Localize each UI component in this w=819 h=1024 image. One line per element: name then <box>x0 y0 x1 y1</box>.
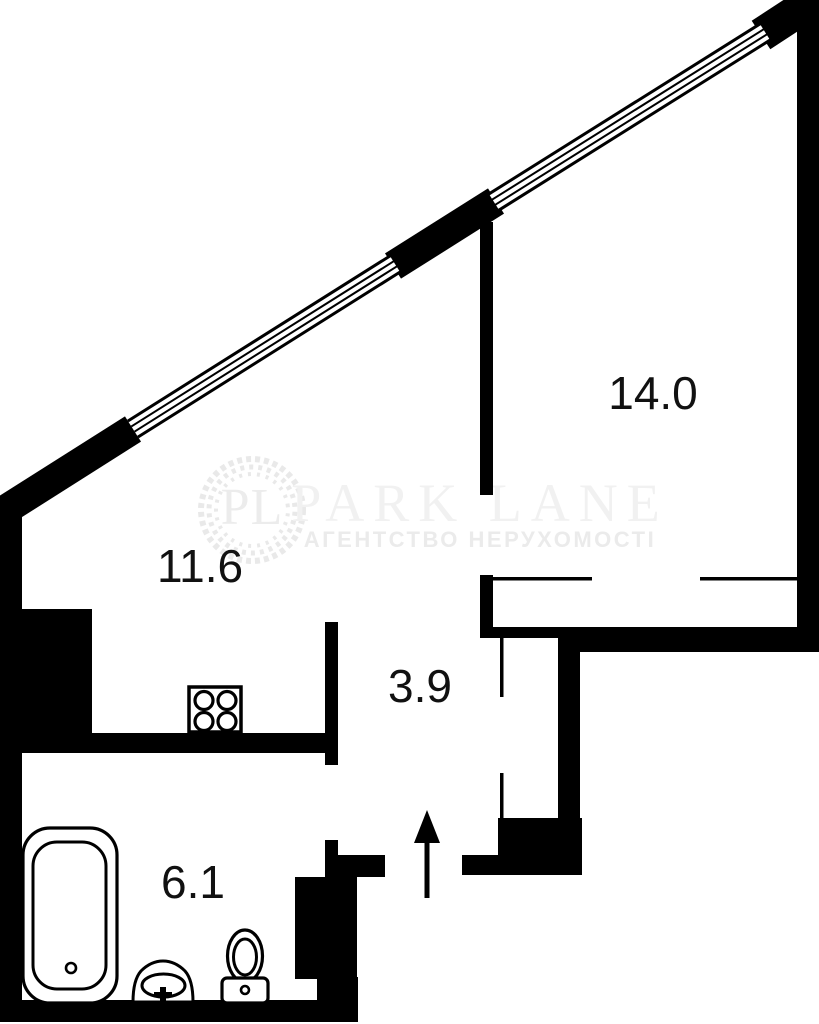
toilet-icon <box>222 930 268 1003</box>
window-segment-2 <box>491 27 768 207</box>
bathtub-icon <box>23 828 117 1003</box>
room-label-living-kitchen: 11.6 <box>157 539 243 593</box>
room-label-bathroom: 6.1 <box>161 855 225 909</box>
entrance-arrow-icon <box>414 810 440 898</box>
sink-icon <box>133 961 193 1002</box>
window-wall <box>2 0 816 512</box>
floor-plan-page: PL PARK LANE АГЕНТСТВО НЕРУХОМОСТІ <box>0 0 819 1024</box>
walls <box>0 0 819 1022</box>
room-label-hallway: 3.9 <box>388 659 452 713</box>
room-label-bedroom: 14.0 <box>608 366 698 420</box>
floor-plan-drawing <box>0 0 819 1024</box>
thin-partitions <box>493 577 797 818</box>
window-segment-1 <box>130 259 398 434</box>
stove-icon <box>189 687 241 732</box>
